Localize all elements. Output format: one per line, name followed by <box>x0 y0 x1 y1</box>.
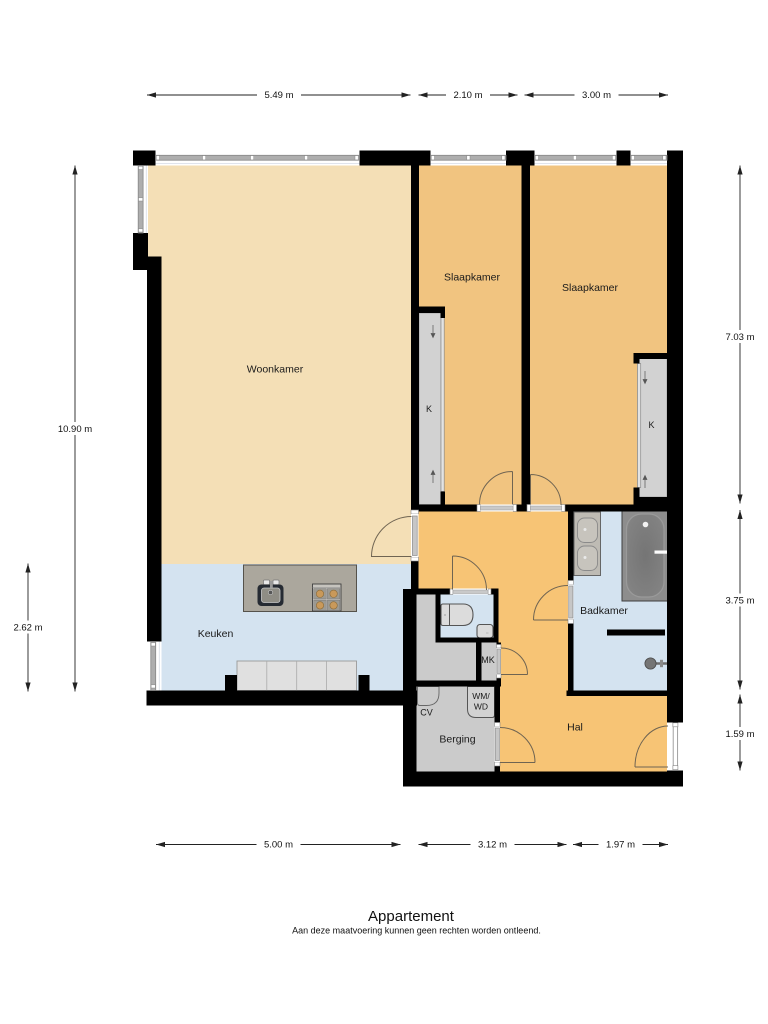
svg-text:MK: MK <box>481 655 495 665</box>
svg-text:1.59 m: 1.59 m <box>725 729 754 740</box>
svg-text:2.62 m: 2.62 m <box>13 623 42 634</box>
svg-text:WM/: WM/ <box>472 691 490 701</box>
svg-text:WD: WD <box>474 702 488 712</box>
svg-text:K: K <box>648 420 654 430</box>
svg-text:CV: CV <box>420 708 433 718</box>
svg-text:2.10 m: 2.10 m <box>453 90 482 101</box>
svg-text:7.03 m: 7.03 m <box>725 332 754 343</box>
svg-text:Keuken: Keuken <box>198 628 234 640</box>
svg-text:3.00 m: 3.00 m <box>582 90 611 101</box>
svg-text:Slaapkamer: Slaapkamer <box>562 282 619 294</box>
svg-text:K: K <box>426 404 432 414</box>
svg-text:Aan deze maatvoering kunnen ge: Aan deze maatvoering kunnen geen rechten… <box>292 926 541 936</box>
svg-text:3.75 m: 3.75 m <box>725 596 754 607</box>
svg-text:5.00 m: 5.00 m <box>264 840 293 851</box>
svg-text:Berging: Berging <box>439 734 475 746</box>
svg-text:5.49 m: 5.49 m <box>264 90 293 101</box>
svg-text:10.90 m: 10.90 m <box>58 424 92 435</box>
svg-text:Woonkamer: Woonkamer <box>247 364 304 376</box>
svg-text:Hal: Hal <box>567 722 583 734</box>
svg-text:1.97 m: 1.97 m <box>606 840 635 851</box>
svg-text:3.12 m: 3.12 m <box>478 840 507 851</box>
svg-text:Slaapkamer: Slaapkamer <box>444 272 501 284</box>
svg-text:Appartement: Appartement <box>368 908 455 925</box>
svg-text:Badkamer: Badkamer <box>580 605 628 617</box>
